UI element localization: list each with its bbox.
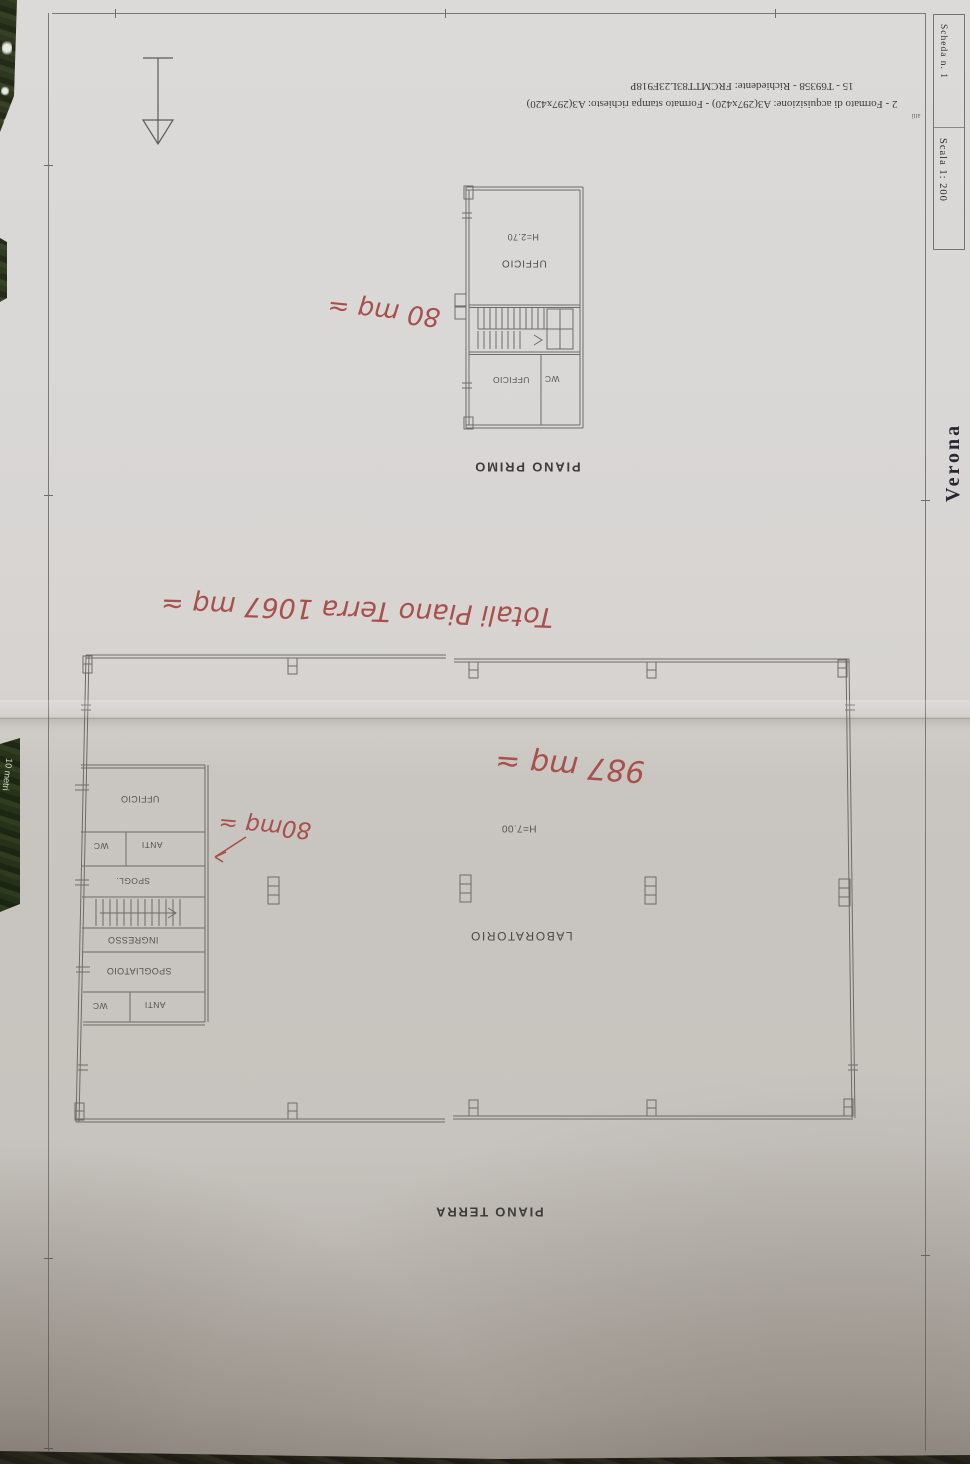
border-tick bbox=[921, 1255, 930, 1256]
titleblock-requester-line: 15 - T69358 - Richiedente: FRCMTT83L23F9… bbox=[630, 80, 853, 92]
handwritten-arrow bbox=[215, 837, 246, 862]
background-speck bbox=[1, 86, 9, 96]
border-tick bbox=[921, 500, 930, 501]
border-tick bbox=[44, 1258, 53, 1259]
wing-wc1-label: WC bbox=[94, 841, 109, 851]
wing-spogliatoio-label: SPOGLIATOIO bbox=[106, 966, 171, 976]
titleblock-small-note: atti bbox=[912, 112, 921, 120]
paper-fold-line bbox=[0, 718, 970, 719]
background-speck bbox=[2, 40, 12, 56]
north-arrow-icon bbox=[140, 50, 180, 150]
wing-ufficio-label: UFFICIO bbox=[121, 794, 160, 804]
stamp-text: Verona bbox=[942, 330, 968, 502]
piano-primo-height-label: H=2.70 bbox=[507, 232, 539, 242]
titleblock-format-line: 2 - Formato di acquisizione: A3(297x420)… bbox=[527, 98, 898, 110]
laboratorio-label: LABORATORIO bbox=[469, 929, 572, 943]
piano-primo-ufficio-label: UFFICIO bbox=[501, 258, 547, 269]
scale-box-divider bbox=[934, 127, 964, 128]
piano-primo-wc-label: WC bbox=[545, 374, 560, 384]
wing-anti1-label: ANTI bbox=[142, 840, 163, 850]
wing-anti2-label: ANTI bbox=[145, 1000, 166, 1010]
wing-ingresso-label: INGRESSO bbox=[108, 935, 159, 945]
border-left-line bbox=[48, 13, 49, 1451]
sheet-number-label: Scheda n. 1 bbox=[938, 24, 948, 124]
piano-terra-plan-drawing bbox=[60, 645, 865, 1145]
wing-spogl-label: SPOGL. bbox=[116, 876, 150, 886]
border-right-line bbox=[925, 13, 926, 1451]
border-tick bbox=[44, 165, 53, 166]
border-tick bbox=[44, 1448, 53, 1449]
scale-label: Scala 1: 200 bbox=[937, 138, 948, 246]
piano-primo-ufficio2-label: UFFICIO bbox=[493, 375, 530, 385]
piano-primo-title: PIANO PRIMO bbox=[473, 460, 580, 475]
border-tick bbox=[775, 9, 776, 18]
border-tick bbox=[44, 495, 53, 496]
piano-primo-plan-drawing bbox=[450, 178, 600, 440]
piano-terra-title: PIANO TERRA bbox=[434, 1205, 543, 1220]
border-tick bbox=[115, 9, 116, 18]
laboratorio-height-label: H=7.00 bbox=[502, 823, 537, 834]
border-tick bbox=[445, 9, 446, 18]
border-top-line bbox=[52, 13, 926, 14]
wing-wc2-label: WC bbox=[93, 1001, 108, 1011]
photo-of-floor-plan-sheet: 10 metri 15 - T69358 - Richiedente: FRCM… bbox=[0, 0, 970, 1464]
